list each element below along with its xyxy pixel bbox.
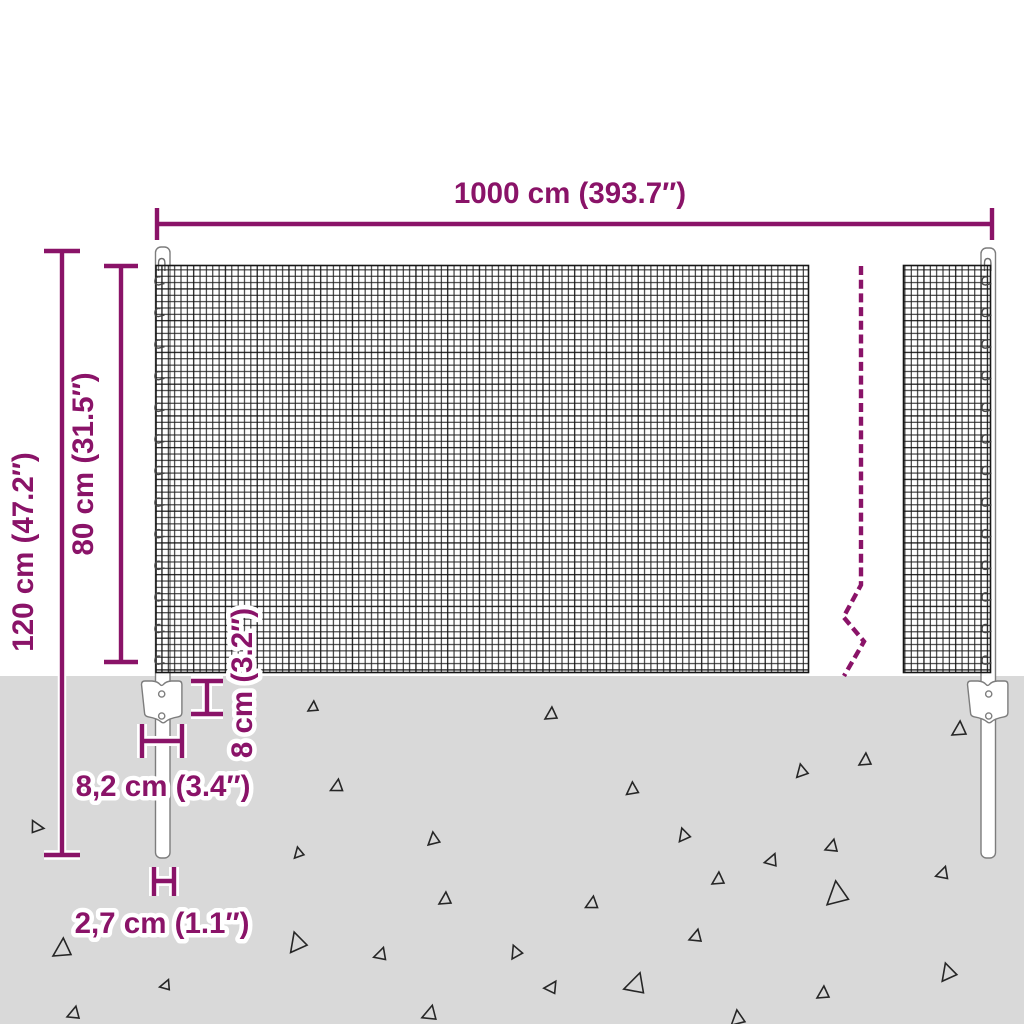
svg-text:80 cm (31.5″): 80 cm (31.5″) [67, 372, 100, 555]
svg-text:2,7 cm (1.1″): 2,7 cm (1.1″) [75, 907, 250, 940]
svg-text:120 cm (47.2″): 120 cm (47.2″) [7, 452, 40, 651]
svg-text:8 cm (3.2″): 8 cm (3.2″) [226, 608, 259, 758]
svg-text:1000 cm (393.7″): 1000 cm (393.7″) [454, 177, 686, 210]
svg-text:8,2 cm (3.4″): 8,2 cm (3.4″) [76, 770, 251, 803]
